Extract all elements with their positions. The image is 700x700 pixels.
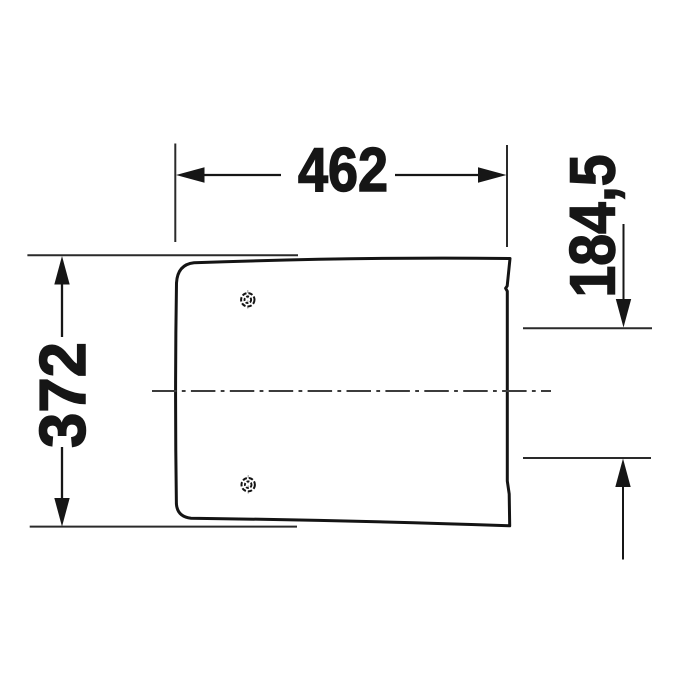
svg-text:462: 462 [298,136,388,205]
svg-text:184,5: 184,5 [557,155,629,298]
svg-text:372: 372 [26,342,99,448]
